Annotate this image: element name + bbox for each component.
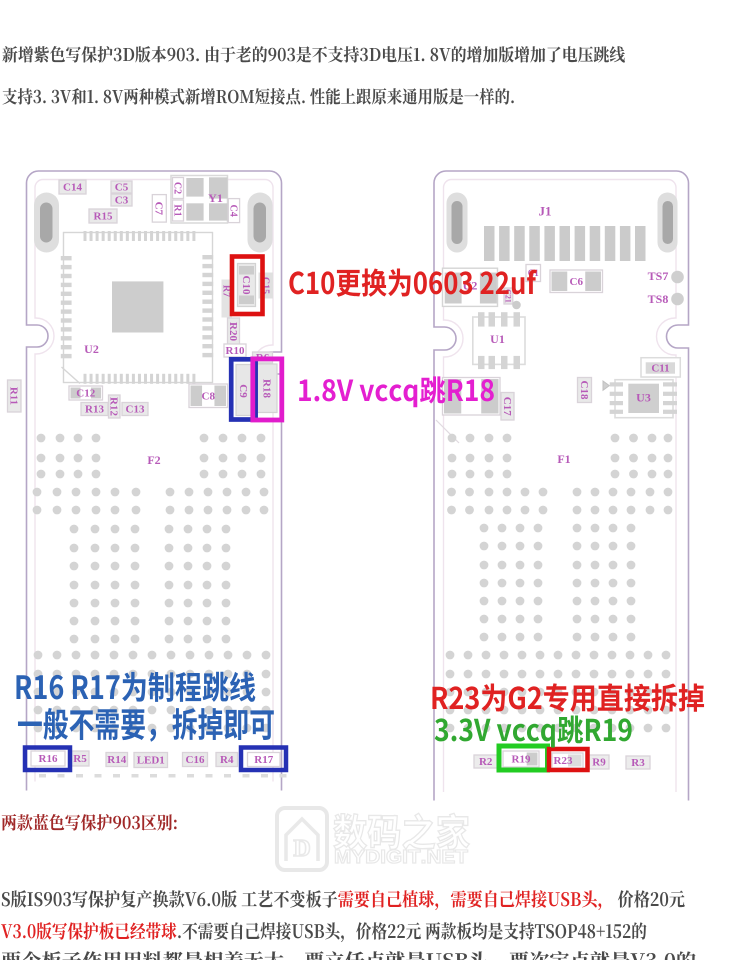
svg-text:C2: C2 — [172, 182, 183, 194]
svg-text:LED1: LED1 — [137, 755, 165, 767]
svg-text:R19: R19 — [512, 754, 531, 766]
svg-text:C12: C12 — [76, 388, 95, 400]
svg-text:C11: C11 — [651, 363, 669, 375]
svg-text:F2: F2 — [147, 453, 160, 467]
svg-text:R10: R10 — [226, 345, 245, 357]
svg-text:R14: R14 — [107, 754, 126, 766]
svg-text:C17: C17 — [501, 397, 513, 416]
svg-text:C14: C14 — [63, 182, 82, 194]
svg-text:R2: R2 — [479, 756, 493, 768]
svg-text:R13: R13 — [85, 404, 104, 416]
svg-text:R12: R12 — [108, 397, 120, 416]
svg-text:R17: R17 — [254, 754, 273, 766]
svg-text:U2: U2 — [84, 342, 99, 356]
svg-text:C10: C10 — [240, 276, 252, 295]
svg-text:C3: C3 — [115, 195, 129, 207]
svg-text:D: D — [293, 836, 310, 862]
svg-text:C5: C5 — [115, 182, 129, 194]
svg-text:Y1: Y1 — [208, 191, 223, 205]
svg-text:R11: R11 — [8, 387, 20, 405]
svg-text:R4: R4 — [220, 754, 234, 766]
svg-text:C4: C4 — [228, 204, 239, 216]
svg-text:R20: R20 — [227, 322, 239, 341]
svg-text:R9: R9 — [592, 757, 606, 769]
svg-text:C6: C6 — [570, 276, 584, 288]
svg-text:R23: R23 — [554, 755, 573, 767]
svg-text:C8: C8 — [202, 390, 216, 402]
svg-text:F1: F1 — [557, 452, 570, 466]
svg-text:U1: U1 — [490, 332, 505, 346]
svg-text:R18: R18 — [260, 379, 272, 398]
svg-text:R1: R1 — [172, 204, 183, 216]
svg-text:C18: C18 — [578, 381, 590, 400]
svg-text:R3: R3 — [631, 757, 645, 769]
svg-text:C7: C7 — [153, 202, 165, 216]
svg-text:C16: C16 — [186, 754, 205, 766]
svg-text:R16: R16 — [39, 753, 58, 765]
svg-text:TS7: TS7 — [648, 269, 669, 283]
svg-text:J1: J1 — [539, 203, 552, 218]
svg-text:R5: R5 — [73, 753, 87, 765]
svg-text:TS8: TS8 — [648, 292, 669, 306]
svg-text:C9: C9 — [237, 384, 249, 398]
svg-text:C13: C13 — [126, 404, 145, 416]
svg-text:R15: R15 — [94, 211, 113, 223]
svg-text:U3: U3 — [636, 391, 651, 405]
svg-text:R7: R7 — [220, 285, 231, 297]
